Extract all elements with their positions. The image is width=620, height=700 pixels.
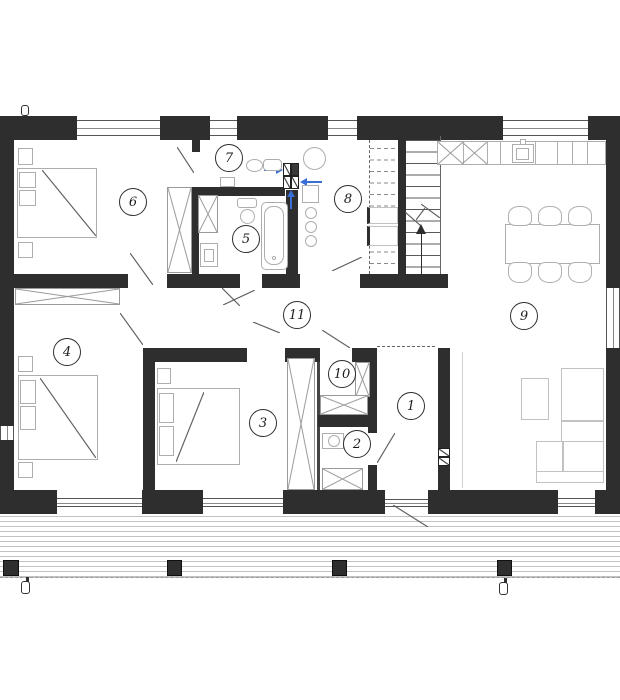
exterior-wall-left: [0, 118, 14, 426]
stair-spine-wall: [398, 136, 406, 274]
utility-unit: [302, 185, 319, 203]
sofa-section: [536, 441, 563, 473]
stair-direction-arrow: [416, 224, 426, 234]
exterior-wall-top: [160, 116, 210, 140]
dining-chair: [538, 206, 562, 226]
bathtub-drain: [272, 256, 276, 260]
room-number: 6: [129, 195, 137, 210]
pillow: [159, 393, 174, 423]
storage-shelf: [320, 395, 368, 415]
interior-wall: [143, 348, 247, 362]
vent-arrow: [290, 196, 292, 209]
sink: [220, 177, 235, 187]
interior-wall: [318, 415, 375, 427]
vent-arrow: [307, 181, 322, 183]
room-label-6: 6: [119, 188, 147, 216]
storage-cabinet: [355, 362, 370, 397]
sofa-section: [536, 471, 604, 483]
room-number: 9: [520, 309, 528, 324]
window: [210, 120, 237, 136]
terrace-deck: [0, 516, 620, 578]
base-cabinet-x: [462, 142, 487, 164]
interior-wall: [143, 360, 155, 497]
nightstand: [18, 356, 33, 372]
deck-post: [3, 560, 19, 576]
blanket-fold-line: [176, 392, 204, 462]
pillow: [159, 426, 174, 456]
blanket-fold-line: [40, 378, 96, 458]
leader-line: [253, 322, 280, 333]
utility-tank: [305, 235, 317, 247]
shower-tray: [322, 468, 363, 490]
exterior-wall-bottom: [0, 490, 57, 514]
utility-tank: [305, 207, 317, 219]
room-number: 4: [63, 345, 71, 360]
downspout-tick: [24, 115, 27, 120]
toilet-bowl: [240, 209, 255, 224]
pillow: [20, 380, 36, 404]
room-number: 1: [407, 399, 415, 414]
window: [57, 498, 142, 507]
vent-arrow-head: [287, 190, 295, 197]
nightstand: [18, 242, 33, 258]
exterior-wall-top: [357, 116, 503, 140]
downspout: [499, 582, 508, 595]
room-number: 10: [334, 367, 351, 382]
vent-shaft-cell: [283, 176, 291, 189]
exterior-wall-bottom: [595, 490, 620, 514]
opening-dashed-line: [377, 346, 435, 347]
leader-line: [223, 290, 255, 305]
deck-post: [332, 560, 347, 576]
dining-chair: [508, 262, 532, 283]
pillow: [20, 406, 36, 430]
downspout: [21, 581, 30, 594]
utility-tank: [305, 221, 317, 233]
window: [203, 498, 283, 507]
door-leaf: [377, 433, 395, 463]
exterior-wall-top: [237, 116, 328, 140]
room-label-4: 4: [53, 338, 81, 366]
dining-table: [505, 224, 600, 264]
dining-chair: [568, 262, 592, 283]
door-leaf: [177, 147, 194, 173]
counter-division: [572, 141, 573, 165]
interior-wall: [167, 274, 240, 288]
leader-line: [393, 505, 428, 527]
wardrobe: [167, 187, 192, 273]
nightstand: [157, 368, 171, 384]
interior-wall: [262, 274, 300, 288]
door-leaf: [332, 257, 362, 271]
door-leaf: [322, 330, 350, 348]
faucet: [520, 139, 526, 145]
room-label-1: 1: [397, 392, 425, 420]
dining-chair: [538, 262, 562, 283]
vent-shaft-cell: [283, 163, 291, 176]
interior-wall: [360, 274, 448, 288]
interior-wall: [0, 274, 128, 288]
room-label-9: 9: [510, 302, 538, 330]
room-number: 11: [289, 308, 306, 323]
window: [606, 288, 620, 348]
door-leaf: [120, 313, 143, 345]
floor-plan-canvas: 7 6 5 8 9 4 11 3 10 2 1: [0, 0, 620, 700]
door-leaf: [130, 253, 153, 285]
wardrobe: [287, 358, 315, 490]
sofa-section: [563, 441, 604, 473]
sofa-section: [561, 421, 604, 443]
stair-break-line: [416, 208, 425, 220]
washer-column: [198, 195, 218, 233]
sofa-section: [561, 368, 604, 421]
dining-chair: [568, 206, 592, 226]
window: [558, 498, 595, 507]
dresser: [15, 288, 120, 305]
stair-landing: [367, 207, 398, 224]
nightstand: [18, 148, 33, 165]
stair-landing: [367, 226, 398, 246]
counter-division: [500, 141, 501, 165]
room-label-8: 8: [334, 185, 362, 213]
room-label-5: 5: [232, 225, 260, 253]
deck-post: [497, 560, 512, 576]
dining-chair: [508, 206, 532, 226]
counter-division: [535, 141, 536, 165]
room-label-11: 11: [283, 301, 311, 329]
room-label-7: 7: [215, 144, 243, 172]
base-cabinet-x: [438, 142, 463, 164]
counter-division: [557, 141, 558, 165]
room-label-10: 10: [328, 360, 356, 388]
sink-basin: [328, 435, 340, 447]
coffee-table: [521, 378, 549, 420]
room-label-2: 2: [343, 430, 371, 458]
interior-wall: [368, 465, 377, 497]
deck-post: [167, 560, 182, 576]
vent-shaft-cell: [438, 457, 450, 466]
boiler: [303, 147, 326, 170]
sink-basin: [204, 249, 214, 262]
nightstand: [18, 462, 33, 478]
counter-division: [487, 141, 488, 165]
room-number: 7: [225, 151, 233, 166]
room-number: 5: [242, 232, 250, 247]
window: [0, 426, 14, 440]
room-number: 2: [353, 437, 361, 452]
vent-shaft-cell: [438, 448, 450, 457]
toilet-cistern: [263, 159, 282, 171]
exterior-wall-right: [606, 118, 620, 288]
pillow: [19, 172, 36, 188]
window: [77, 120, 160, 136]
counter-division: [587, 141, 588, 165]
room-number: 8: [344, 192, 352, 207]
curtain-line: [462, 352, 463, 488]
toilet-cistern: [237, 198, 257, 208]
room-number: 3: [259, 416, 267, 431]
vent-shaft-cell: [291, 163, 299, 176]
interior-wall: [438, 348, 450, 497]
kitchen-sink-basin: [516, 148, 529, 160]
toilet-bowl: [246, 159, 263, 172]
vent-shaft-cell: [291, 176, 299, 189]
stair-direction-line: [421, 234, 422, 286]
pillow: [19, 190, 36, 206]
room-label-3: 3: [249, 409, 277, 437]
window: [503, 120, 588, 136]
window: [328, 120, 357, 136]
blanket-fold-line: [42, 170, 96, 236]
